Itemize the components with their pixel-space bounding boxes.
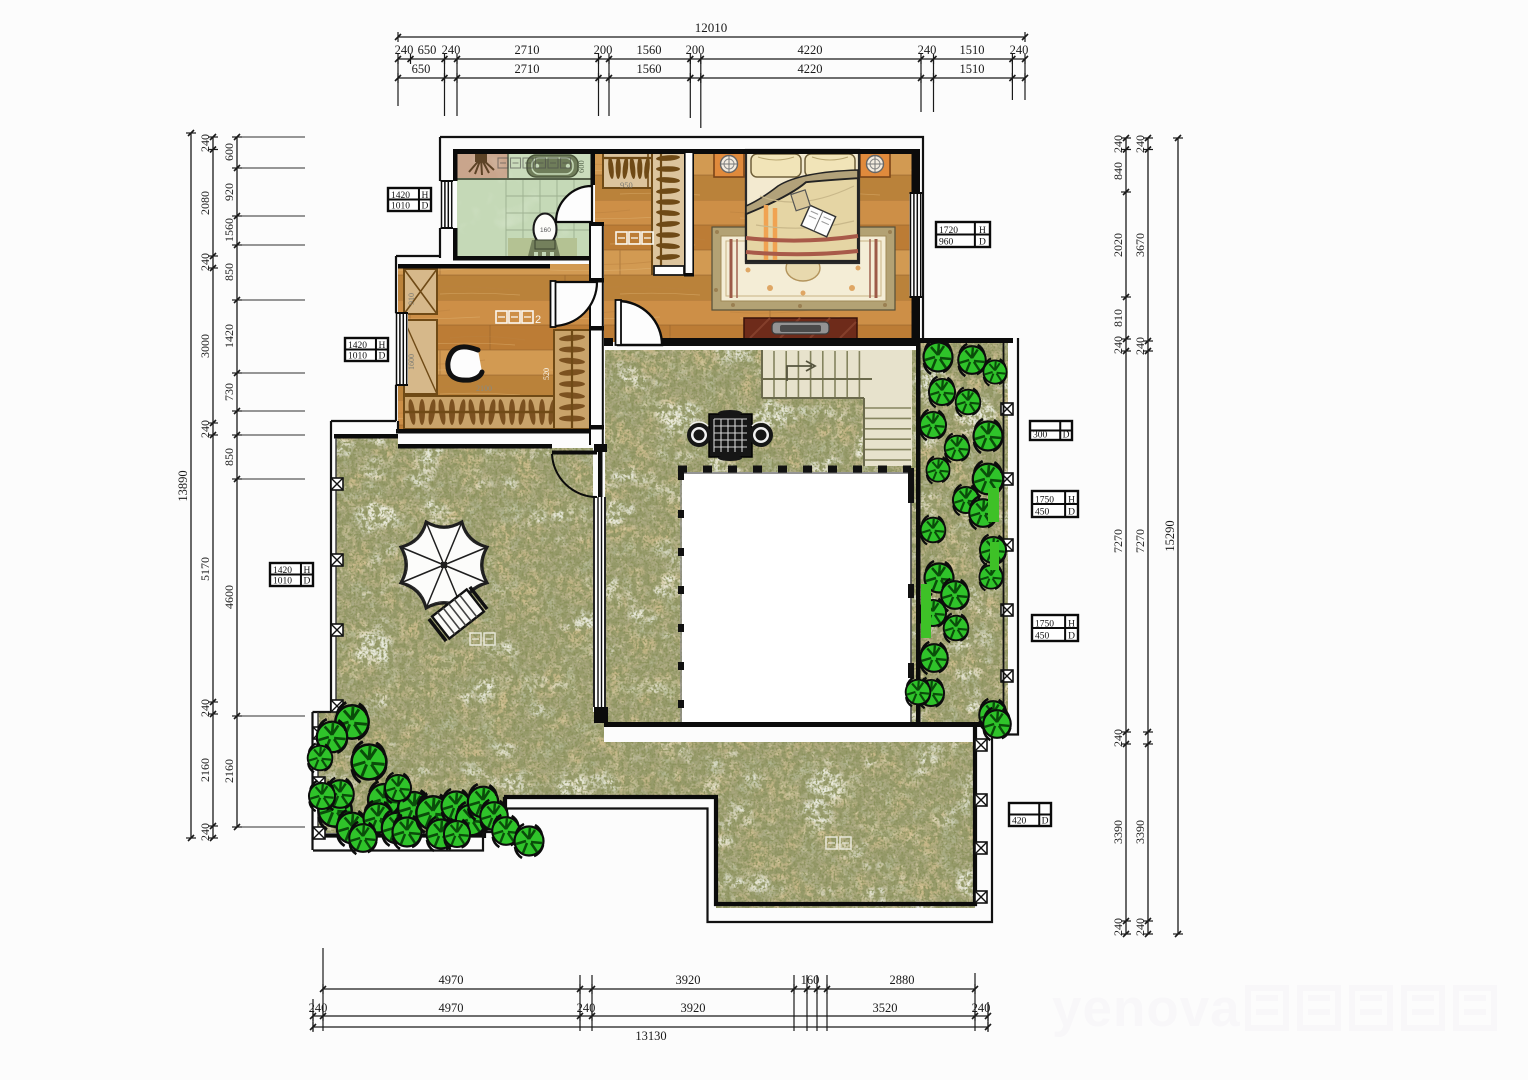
svg-text:D: D — [1042, 817, 1049, 827]
svg-text:1420: 1420 — [348, 341, 367, 351]
svg-text:240: 240 — [1111, 336, 1125, 354]
svg-text:240: 240 — [1133, 135, 1147, 153]
svg-text:850: 850 — [222, 448, 236, 466]
svg-text:240: 240 — [1133, 918, 1147, 936]
svg-text:D: D — [1063, 431, 1070, 441]
svg-text:240: 240 — [395, 43, 414, 57]
svg-text:420: 420 — [1012, 817, 1027, 827]
svg-text:240: 240 — [198, 134, 212, 152]
svg-text:3390: 3390 — [1133, 820, 1147, 844]
svg-text:1720: 1720 — [939, 226, 958, 236]
svg-text:240: 240 — [198, 253, 212, 271]
svg-text:H: H — [1068, 496, 1075, 506]
svg-text:D: D — [379, 352, 386, 362]
svg-text:1750: 1750 — [1035, 620, 1054, 630]
svg-text:2020: 2020 — [1111, 233, 1125, 257]
svg-text:240: 240 — [1111, 918, 1125, 936]
svg-text:240: 240 — [198, 823, 212, 841]
svg-text:H: H — [979, 226, 986, 236]
svg-text:2880: 2880 — [890, 973, 915, 987]
svg-text:1510: 1510 — [960, 43, 985, 57]
svg-text:2710: 2710 — [515, 62, 540, 76]
svg-text:650: 650 — [418, 43, 437, 57]
svg-text:1420: 1420 — [273, 566, 292, 576]
svg-text:450: 450 — [1035, 632, 1050, 642]
svg-text:H: H — [1068, 620, 1075, 630]
svg-text:H: H — [304, 566, 311, 576]
svg-text:240: 240 — [1111, 135, 1125, 153]
svg-text:240: 240 — [198, 699, 212, 717]
svg-text:2160: 2160 — [198, 758, 212, 782]
svg-text:240: 240 — [1010, 43, 1029, 57]
svg-text:H: H — [379, 341, 386, 351]
svg-text:2: 2 — [535, 314, 541, 326]
svg-text:7270: 7270 — [1111, 529, 1125, 553]
svg-text:1750: 1750 — [1035, 496, 1054, 506]
svg-text:3000: 3000 — [198, 334, 212, 358]
svg-text:yenova: yenova — [1052, 979, 1241, 1038]
svg-text:920: 920 — [222, 183, 236, 201]
svg-text:13130: 13130 — [635, 1029, 666, 1043]
svg-text:2160: 2160 — [222, 759, 236, 783]
svg-text:950: 950 — [620, 180, 633, 190]
svg-text:1010: 1010 — [273, 577, 292, 587]
svg-text:13890: 13890 — [176, 470, 190, 501]
svg-text:650: 650 — [412, 62, 431, 76]
svg-text:600: 600 — [576, 160, 586, 173]
svg-text:3920: 3920 — [676, 973, 701, 987]
svg-text:3520: 3520 — [873, 1001, 898, 1015]
svg-text:1010: 1010 — [391, 202, 410, 212]
svg-text:2710: 2710 — [515, 43, 540, 57]
svg-text:1560: 1560 — [637, 62, 662, 76]
svg-text:840: 840 — [1111, 162, 1125, 180]
svg-text:910: 910 — [407, 293, 416, 305]
svg-text:4220: 4220 — [798, 43, 823, 57]
svg-text:D: D — [1068, 508, 1075, 518]
svg-text:240: 240 — [1133, 337, 1147, 355]
svg-text:12010: 12010 — [695, 20, 728, 35]
svg-text:600: 600 — [222, 143, 236, 161]
svg-text:15290: 15290 — [1163, 520, 1177, 551]
svg-text:450: 450 — [1035, 508, 1050, 518]
svg-text:D: D — [422, 202, 429, 212]
svg-text:240: 240 — [309, 1001, 328, 1015]
svg-text:D: D — [304, 577, 311, 587]
svg-text:4600: 4600 — [222, 585, 236, 609]
svg-text:1600: 1600 — [407, 354, 416, 370]
svg-text:160: 160 — [540, 227, 551, 234]
svg-text:240: 240 — [442, 43, 461, 57]
svg-text:200: 200 — [594, 43, 613, 57]
svg-text:H: H — [422, 191, 429, 201]
svg-text:240: 240 — [1111, 729, 1125, 747]
svg-text:300: 300 — [1033, 431, 1048, 441]
svg-text:1420: 1420 — [391, 191, 410, 201]
svg-text:4220: 4220 — [798, 62, 823, 76]
svg-text:1420: 1420 — [222, 324, 236, 348]
svg-text:7270: 7270 — [1133, 529, 1147, 553]
svg-text:1510: 1510 — [960, 62, 985, 76]
svg-text:240: 240 — [918, 43, 937, 57]
svg-text:1560: 1560 — [637, 43, 662, 57]
svg-text:5170: 5170 — [198, 557, 212, 581]
svg-text:730: 730 — [222, 383, 236, 401]
svg-text:4970: 4970 — [439, 973, 464, 987]
svg-text:3670: 3670 — [1133, 233, 1147, 257]
svg-text:D: D — [979, 238, 986, 248]
svg-text:200: 200 — [686, 43, 705, 57]
svg-text:1560: 1560 — [222, 218, 236, 242]
svg-text:810: 810 — [1111, 309, 1125, 327]
svg-text:2100: 2100 — [476, 384, 492, 393]
svg-text:850: 850 — [222, 263, 236, 281]
svg-text:2080: 2080 — [198, 191, 212, 215]
svg-text:4970: 4970 — [439, 1001, 464, 1015]
svg-text:960: 960 — [939, 238, 954, 248]
svg-text:520: 520 — [542, 368, 551, 380]
svg-text:3920: 3920 — [681, 1001, 706, 1015]
svg-text:D: D — [1068, 632, 1075, 642]
svg-text:240: 240 — [198, 420, 212, 438]
svg-text:3390: 3390 — [1111, 820, 1125, 844]
svg-text:1010: 1010 — [348, 352, 367, 362]
